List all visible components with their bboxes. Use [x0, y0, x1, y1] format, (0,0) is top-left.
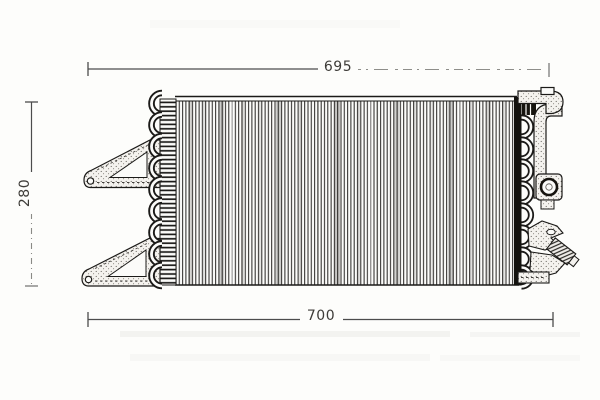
core-right-end-plate [514, 97, 522, 286]
bracket-bolt-hole [85, 276, 91, 282]
scanned-technical-drawing: 695 700 280 [0, 0, 600, 400]
dimension-height-left: 280 [15, 102, 38, 286]
dimension-width-bottom: 700 [88, 306, 553, 327]
condenser-line-drawing: 695 700 280 [0, 0, 600, 400]
bracket-body [82, 239, 160, 287]
mounting-bracket-bottom [82, 239, 160, 287]
dim-label-left-height: 280 [17, 179, 33, 207]
boss-hole [541, 179, 557, 195]
left-fin-strip [160, 99, 176, 285]
dim-label-top-width: 695 [324, 59, 352, 75]
dim-label-bottom-width: 700 [307, 308, 335, 324]
core-fin-area [176, 101, 514, 285]
dimension-width-top: 695 [88, 57, 549, 77]
boss-tab [541, 200, 554, 209]
bracket-bolt-hole [87, 178, 93, 184]
right-serpentine-loops [522, 118, 532, 287]
condenser-core [175, 97, 522, 286]
flange-tab [541, 88, 554, 95]
fitting-port [547, 229, 555, 235]
